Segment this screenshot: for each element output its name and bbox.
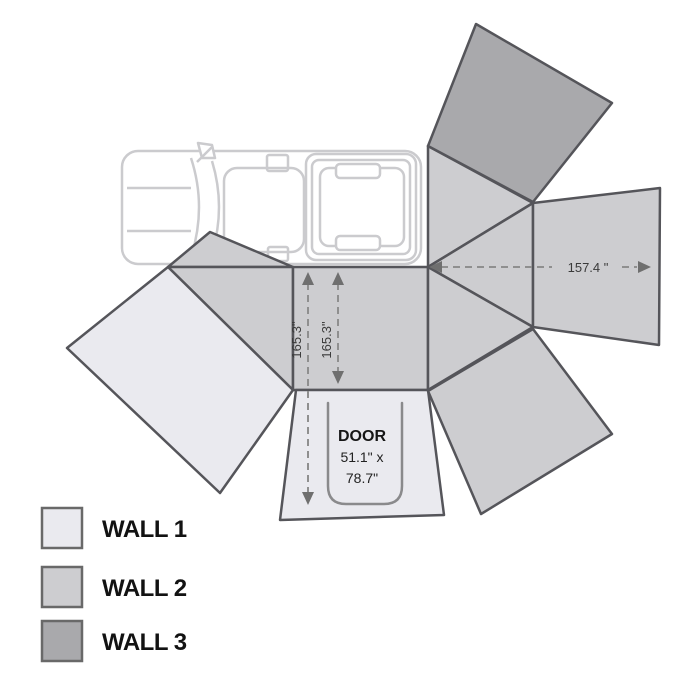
awning-center-panel: [293, 267, 428, 390]
height-dimension-label-right: 165.3": [319, 321, 334, 359]
awning-floorplan-diagram: 165.3" 165.3" 157.4 " DOOR 51.1" x 78.7"…: [0, 0, 700, 700]
diagram-canvas: 165.3" 165.3" 157.4 " DOOR 51.1" x 78.7"…: [0, 0, 700, 700]
height-dimension-label-left: 165.3": [289, 321, 304, 359]
legend-label-wall-3: WALL 3: [102, 629, 187, 656]
vehicle-bed-notch: [336, 164, 380, 178]
door-size-line2: 78.7": [346, 470, 378, 486]
vehicle-top-view: [122, 143, 421, 264]
vehicle-mirror: [198, 143, 215, 158]
legend-swatch-wall-3: [42, 621, 82, 661]
legend: WALL 1 WALL 2 WALL 3: [42, 508, 187, 661]
width-dimension-label: 157.4 ": [568, 260, 609, 275]
legend-swatch-wall-2: [42, 567, 82, 607]
door-title: DOOR: [338, 428, 386, 445]
legend-swatch-wall-1: [42, 508, 82, 548]
legend-label-wall-2: WALL 2: [102, 575, 187, 602]
door-size-line1: 51.1" x: [340, 449, 383, 465]
vehicle-bed-notch: [336, 236, 380, 250]
legend-label-wall-1: WALL 1: [102, 516, 187, 543]
